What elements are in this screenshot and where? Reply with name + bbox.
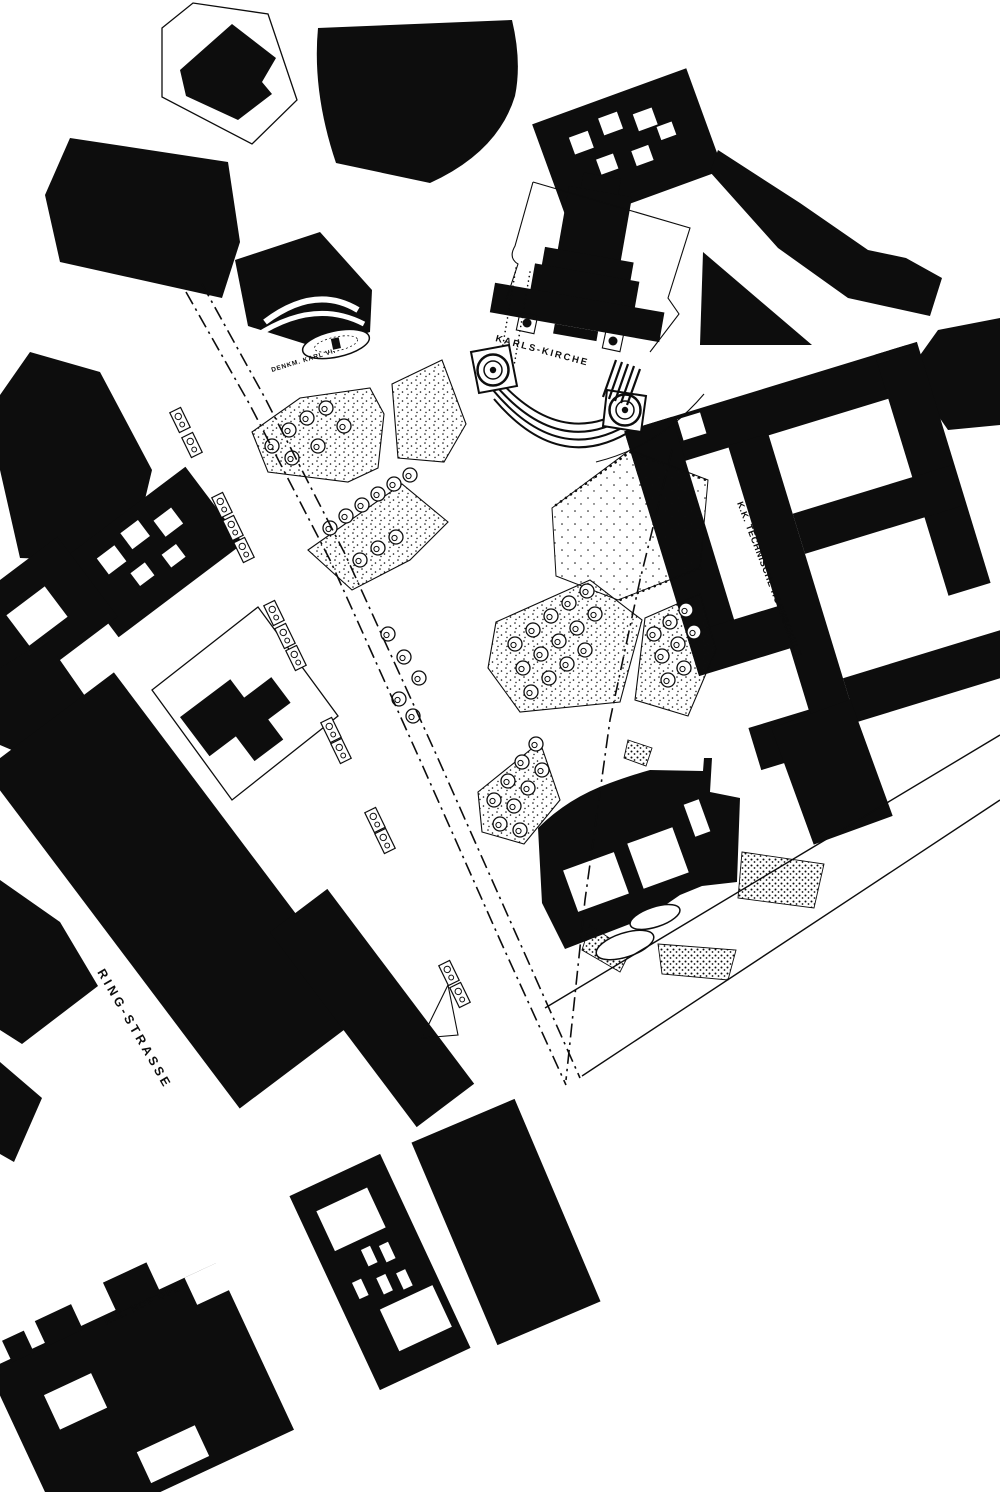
building-in-pentagon	[180, 24, 276, 120]
block-long-ringside	[0, 672, 369, 1108]
block-sw-ring-1	[0, 880, 98, 1044]
block-ne-triangle	[700, 252, 812, 345]
block-sw-of-pentagon	[45, 138, 240, 298]
building-hofoper	[0, 1235, 295, 1492]
block-sw-ring-2	[0, 1062, 42, 1162]
building-blocks	[0, 20, 1000, 1492]
map-page: KARLS-KIRCHE DENKM. KARL VI. RING-STRASS…	[0, 0, 1000, 1492]
block-north-of-plaza	[317, 20, 518, 183]
building-in-museum-parcel	[180, 659, 306, 781]
karlsplatz-figure-ground-map: KARLS-KIRCHE DENKM. KARL VI. RING-STRASS…	[0, 0, 1000, 1492]
